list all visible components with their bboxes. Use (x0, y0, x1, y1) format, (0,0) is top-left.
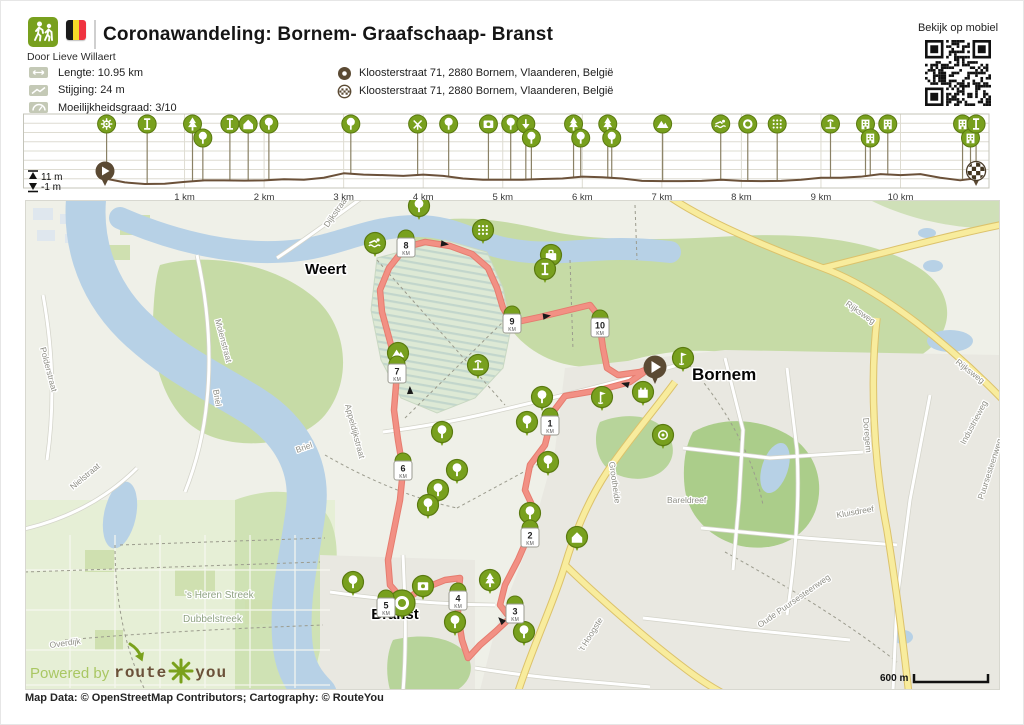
building-icon (866, 134, 874, 144)
elevation-profile: 1 km2 km3 km4 km5 km6 km7 km8 km9 km10 k… (23, 108, 993, 205)
profile-min-elevation: -1 m (41, 182, 61, 193)
start-address-row: Kloosterstraat 71, 2880 Bornem, Vlaander… (337, 64, 613, 82)
stat-length: Lengte: 10.95 km (29, 64, 177, 82)
routeyou-star-icon (168, 658, 194, 689)
svg-text:9: 9 (509, 317, 514, 327)
routeyou-print-page: Coronawandeling: Bornem- Graafschaap- Br… (0, 0, 1024, 725)
city-label: Weert (305, 261, 346, 278)
svg-text:KM: KM (454, 604, 462, 610)
photo-icon (484, 120, 494, 127)
photo-icon (418, 582, 428, 590)
stat-ascent-text: Stijging: 24 m (58, 84, 125, 96)
routeyou-brand-left: route (114, 664, 167, 682)
svg-text:KM: KM (393, 377, 401, 383)
map-scale-bar (912, 672, 990, 685)
map-poi-swim (365, 233, 386, 254)
street-label: Dubbelstreek (183, 614, 243, 625)
grid-icon (773, 119, 782, 128)
svg-text:KM: KM (596, 331, 604, 337)
grid-icon (478, 225, 488, 235)
routeyou-brand-right: you (195, 664, 227, 682)
route-addresses: Kloosterstraat 71, 2880 Bornem, Vlaander… (337, 64, 613, 100)
profile-poi-ring (739, 115, 757, 133)
svg-text:2: 2 (527, 531, 532, 541)
route-author: Door Lieve Willaert (27, 51, 116, 63)
city-label: Bornem (692, 365, 756, 384)
svg-text:KM: KM (382, 611, 390, 617)
svg-text:KM: KM (508, 327, 516, 333)
svg-text:KM: KM (399, 474, 407, 480)
map-poi-golf (673, 348, 694, 369)
svg-text:1: 1 (547, 419, 552, 429)
gear-icon (101, 118, 112, 129)
finish-address: Kloosterstraat 71, 2880 Bornem, Vlaander… (359, 85, 613, 97)
svg-text:KM: KM (526, 541, 534, 547)
hikers-logo-icon (28, 17, 58, 47)
svg-text:8: 8 (403, 241, 408, 251)
belgium-flag-icon (66, 20, 86, 40)
building-icon (884, 120, 892, 130)
routeyou-watermark: Powered by route you (30, 658, 227, 688)
stat-ascent: Stijging: 24 m (29, 82, 177, 100)
svg-text:4: 4 (455, 594, 460, 604)
building-icon (862, 120, 870, 130)
ascent-icon (29, 84, 49, 97)
svg-text:7: 7 (394, 367, 399, 377)
header-divider (94, 20, 96, 49)
street-label: Bareldreef (667, 495, 707, 505)
powered-by-text: Powered by (30, 665, 109, 682)
profile-poi-swim (712, 115, 730, 133)
street-label: 's Heren Streek (185, 590, 255, 601)
start-address: Kloosterstraat 71, 2880 Bornem, Vlaander… (359, 67, 613, 79)
svg-text:KM: KM (402, 251, 410, 257)
watermark-arrow-icon (127, 642, 149, 664)
map-poi-golf (592, 387, 613, 408)
start-marker-icon (337, 66, 352, 81)
finish-address-row: Kloosterstraat 71, 2880 Bornem, Vlaander… (337, 82, 613, 100)
route-title: Coronawandeling: Bornem- Graafschaap- Br… (103, 24, 553, 46)
svg-text:3: 3 (512, 607, 517, 617)
route-map: DijkstraatMolenstraatBrielBrielAppeldijk… (25, 200, 1000, 690)
map-scale: 600 m (880, 672, 990, 685)
svg-text:KM: KM (546, 429, 554, 435)
svg-text:10: 10 (595, 321, 605, 331)
building-icon (959, 120, 967, 130)
map-attribution: Map Data: © OpenStreetMap Contributors; … (25, 692, 384, 704)
finish-marker-icon (337, 84, 352, 99)
qr-label: Bekijk op mobiel (893, 22, 1023, 34)
stat-length-text: Lengte: 10.95 km (58, 67, 143, 79)
qr-block: Bekijk op mobiel (893, 22, 1023, 111)
distance-icon (29, 66, 49, 79)
building-icon (967, 134, 975, 144)
svg-text:5: 5 (383, 601, 388, 611)
svg-text:6: 6 (400, 464, 405, 474)
map-scale-label: 600 m (880, 673, 908, 685)
qr-code (925, 40, 991, 106)
svg-text:KM: KM (511, 617, 519, 623)
